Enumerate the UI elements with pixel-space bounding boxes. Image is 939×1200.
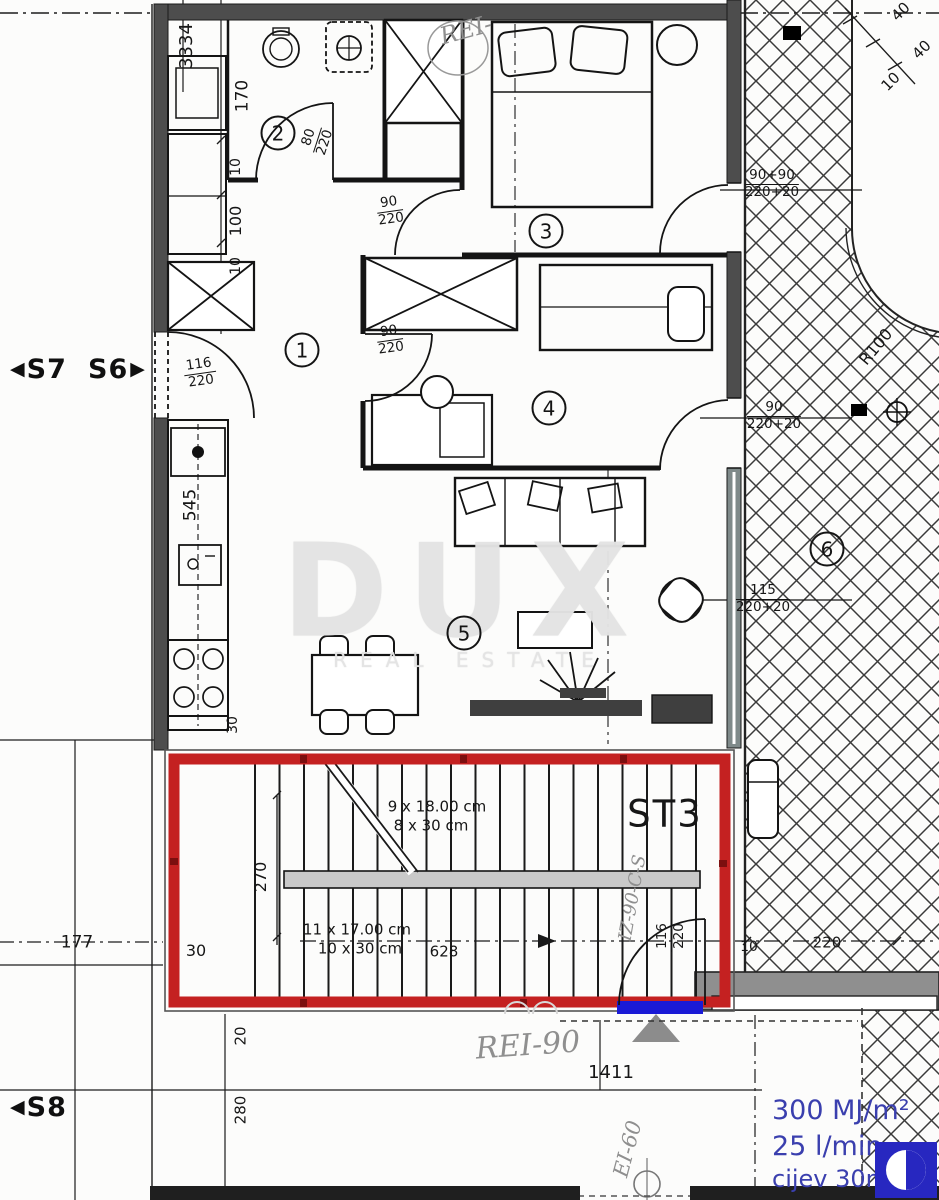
room-number-2: 2: [261, 116, 296, 151]
window-label-90-22020: 90220+20: [747, 401, 801, 431]
kitchen-counter: [168, 56, 228, 730]
room-number-1: 1: [285, 333, 320, 368]
dim-177: 177: [61, 935, 93, 952]
watermark-tagline: REAL ESTATE: [333, 648, 607, 672]
dim-270: 270: [253, 862, 269, 893]
hydrant-icon-half: [906, 1150, 926, 1190]
floor-plan-page: DUX REAL ESTATE 3334 170 10 100 10 545 3…: [0, 0, 939, 1200]
dim-220: 220: [813, 936, 842, 951]
door-label-90-220-a: 90220: [375, 194, 405, 227]
dim-30b: 30: [186, 943, 206, 959]
section-arrow-icon: ◀: [10, 1098, 25, 1117]
hydrant-icon-circle: [886, 1150, 926, 1190]
dim-20: 20: [234, 1026, 249, 1045]
dim-1411: 1411: [588, 1064, 634, 1082]
fire-energy-value: 300 MJ/m²: [772, 1095, 910, 1126]
stair-upper-spec-2: 8 x 30 cm: [394, 819, 469, 834]
room-number-4: 4: [532, 391, 567, 426]
window-label-9090-22020: 90+90220+20: [745, 169, 799, 199]
section-arrow-icon: ▶: [130, 360, 145, 379]
door-label-116-220-b: 116220: [656, 920, 686, 952]
shafts: [168, 20, 517, 330]
staircase-id: ST3: [627, 796, 703, 833]
stair-lower-spec-1: 11 x 17.00 cm: [303, 923, 411, 938]
dim-10b: 10: [229, 257, 243, 275]
annotation-rei-90: REI-90: [475, 1027, 581, 1064]
stair-upper-spec-1: 9 x 18.00 cm: [388, 800, 487, 815]
section-marker-s6: S6 ▶: [88, 356, 145, 383]
dim-545: 545: [183, 489, 200, 521]
dim-628: 628: [430, 945, 459, 960]
section-arrow-icon: ◀: [10, 360, 25, 379]
dim-280: 280: [234, 1096, 249, 1125]
section-marker-s7: ◀ S7: [10, 356, 67, 383]
door-label-90-220-b: 90220: [375, 323, 405, 356]
room-number-5: 5: [447, 616, 482, 651]
bathroom-fixtures: [263, 22, 372, 72]
fire-pipe-value: cijev 30m: [772, 1165, 889, 1193]
section-marker-s8: ◀ S8: [10, 1094, 67, 1121]
fire-flow-value: 25 l/min: [772, 1131, 882, 1162]
dim-10c: 10: [740, 940, 758, 954]
study-furniture: [372, 376, 492, 465]
dim-30a: 30: [226, 716, 240, 734]
stair-lower-spec-2: 10 x 30 cm: [318, 942, 402, 957]
dim-170: 170: [235, 80, 252, 112]
room-number-6: 6: [810, 532, 845, 567]
window-label-115-22020: 115220+20: [736, 584, 790, 614]
hydrant-icon: [875, 1142, 937, 1198]
room-number-3: 3: [529, 214, 564, 249]
dim-3334: 3334: [178, 23, 196, 69]
door-label-116-220-a: 116220: [182, 356, 218, 390]
bedroom-furniture: [492, 22, 712, 350]
dim-100: 100: [228, 206, 244, 237]
dim-10a: 10: [229, 158, 243, 176]
